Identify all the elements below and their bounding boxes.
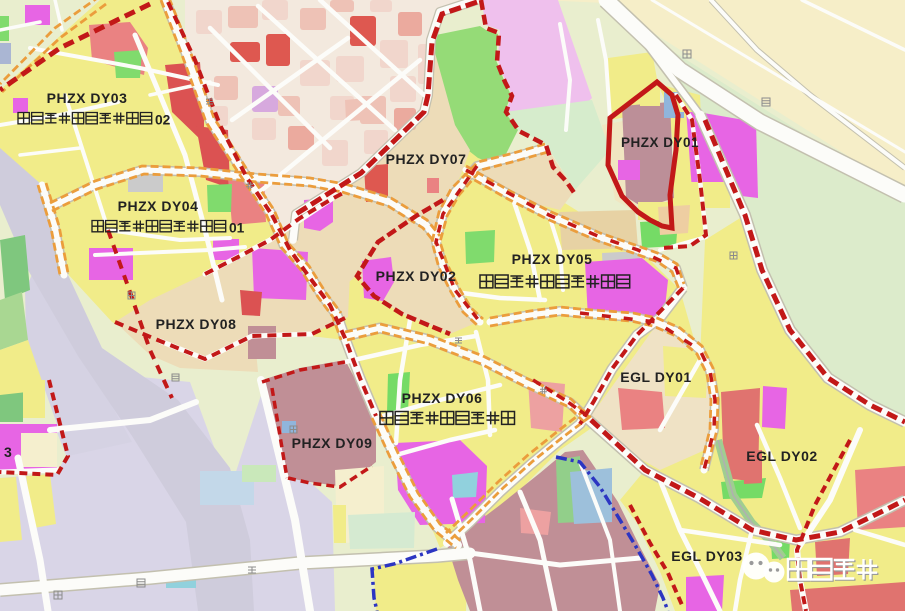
svg-text:PHZX DY02: PHZX DY02 (376, 268, 457, 284)
svg-text:PHZX DY07: PHZX DY07 (386, 151, 467, 167)
svg-text:PHZX DY06: PHZX DY06 (402, 390, 483, 406)
svg-text:PHZX DY01: PHZX DY01 (621, 135, 699, 150)
svg-text:02: 02 (155, 112, 171, 127)
svg-text:PHZX DY09: PHZX DY09 (292, 435, 373, 451)
svg-text:EGL DY01: EGL DY01 (620, 369, 691, 385)
svg-text:01: 01 (229, 220, 245, 235)
svg-text:PHZX DY08: PHZX DY08 (156, 316, 237, 332)
svg-text:EGL DY03: EGL DY03 (671, 548, 742, 564)
svg-text:PHZX DY03: PHZX DY03 (47, 90, 128, 106)
svg-text:3: 3 (4, 444, 12, 460)
svg-text:EGL DY02: EGL DY02 (746, 448, 817, 464)
svg-text:PHZX DY05: PHZX DY05 (512, 251, 593, 267)
svg-text:PHZX DY04: PHZX DY04 (118, 198, 199, 214)
